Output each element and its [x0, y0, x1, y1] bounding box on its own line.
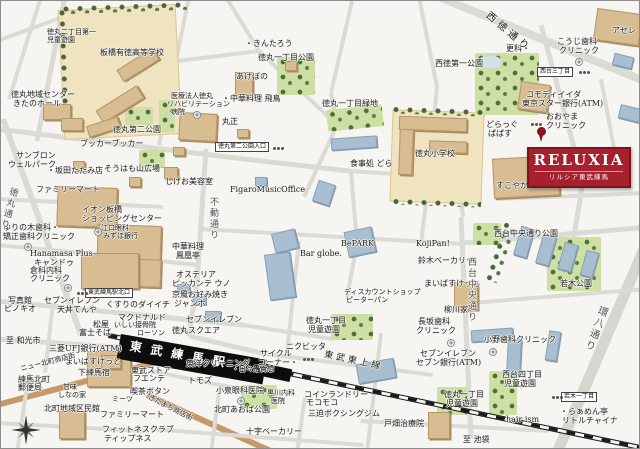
map-label: 京風お好み焼き — [172, 291, 228, 299]
traffic-signal-icon — [77, 292, 80, 295]
map-label: トモズ — [188, 377, 212, 385]
map-label: 徳丸一丁目 — [444, 391, 484, 399]
road-segment — [7, 0, 43, 100]
road-segment — [329, 0, 355, 93]
map-label: 北町あおば公園 — [214, 406, 270, 414]
medical-cross-icon: + — [489, 348, 497, 356]
map-label: 食事処 どら — [350, 160, 393, 168]
map-label: ジャンボ — [174, 300, 206, 308]
map-label: ・らぁめん亭 — [560, 408, 608, 416]
traffic-signal-icon — [531, 123, 534, 126]
building — [312, 180, 336, 206]
park-area — [125, 107, 153, 125]
map-label: 児童遊園 — [504, 380, 536, 388]
map-label: 西台中央通り公園 — [494, 230, 558, 238]
map-label: 児童遊園 — [446, 400, 478, 408]
map-label: 徳丸小学校 — [415, 150, 455, 158]
map-label: 三迫ボクシングジム — [308, 410, 380, 418]
medical-cross-icon: + — [64, 284, 72, 292]
traffic-signal-icon — [273, 147, 276, 150]
map-label: ぱぱす — [488, 130, 512, 138]
map-label: サンブロン — [16, 152, 56, 160]
building — [331, 135, 378, 150]
map-label: しげお美容室 — [165, 178, 213, 186]
map-label: Bar globe. — [300, 250, 342, 258]
map-label: 矯正歯科クリニック — [3, 233, 75, 241]
map-label: 西台四丁目 — [502, 371, 542, 379]
traffic-signal-icon — [303, 358, 306, 361]
map-label: 東武東上線 — [323, 351, 384, 372]
map-label: 徳丸スクエア — [172, 327, 220, 335]
map-label: リトルチャイナ — [562, 417, 618, 425]
map-label: 鳳凰亭 — [176, 252, 200, 260]
map-label: サイクル — [260, 350, 292, 358]
map-label: いしい接骨院 — [114, 322, 156, 329]
map-label: 若木公園 — [560, 280, 592, 288]
medical-cross-icon: + — [193, 111, 201, 119]
property-pin-icon — [539, 135, 543, 142]
map-label: ・日々是貴想 — [232, 366, 274, 373]
building — [59, 411, 85, 439]
map-label: ・中華料理 飛鳥 — [222, 95, 281, 103]
map-label: 板橋有徳高等学校 — [100, 49, 164, 57]
map-label: 東京スター銀行(ATM) — [522, 100, 603, 108]
map-label: 不動通り — [208, 197, 217, 241]
map-label: 中華料理 — [172, 243, 204, 251]
map-label: FigaroMusicOffice — [230, 186, 305, 194]
map-label: ミーツ — [112, 396, 133, 403]
map-label: しなの家 — [58, 392, 86, 399]
map-label: ファミリーマート — [36, 186, 100, 194]
building — [285, 61, 297, 71]
map-label: くすりのダイイチ — [106, 301, 170, 309]
map-label: どらっぐ — [486, 121, 518, 129]
map-label: 十字ベーカリー — [246, 428, 302, 436]
map-label: 西台中央通り — [466, 257, 475, 323]
map-label: BePARK — [341, 240, 374, 248]
map-label: ゆりの木歯科・ — [3, 224, 59, 232]
map-label: こうじ歯科 — [557, 38, 597, 46]
map-label: そうはも山広場 — [104, 165, 160, 173]
map-label: 病院 — [171, 109, 185, 116]
map-label: リハビリテーション — [167, 101, 230, 108]
map-label: 甘味 — [63, 384, 77, 391]
map-label: 長坂歯科 — [418, 318, 450, 326]
map-label: KojiPan! — [416, 240, 450, 248]
map-label: ファミリーマート — [100, 411, 164, 419]
building — [398, 129, 414, 175]
medical-cross-icon: + — [24, 243, 32, 251]
map-label: 小泉眼科医院 — [216, 387, 264, 395]
map-label: ローソン — [137, 330, 165, 337]
map-label: 小野歯科クリニック — [484, 336, 556, 344]
map-label: 江口眼科 — [101, 225, 129, 232]
map-label: セブンイレブン — [186, 316, 242, 324]
map-label: 三菱UFJ銀行(ATM) — [49, 345, 122, 353]
map-label: フィットネスクラブ — [102, 426, 174, 434]
map-label: Hanamasa Plus — [30, 250, 93, 258]
map-label: ニクビッタ — [286, 343, 326, 351]
map-label: 黒川内科 — [267, 390, 295, 397]
map-label: コーナー・ — [258, 359, 298, 367]
road-segment — [227, 155, 350, 174]
building — [61, 118, 83, 131]
medical-cross-icon: + — [447, 339, 455, 347]
map-label: ピーターパン — [346, 297, 388, 304]
map-label: 医療法人徳丸 — [171, 93, 213, 100]
map-label: セブンイレブン — [44, 297, 100, 305]
property-badge: RELUXIA リルシア東武練馬 — [527, 147, 631, 188]
map-label: クリニック — [546, 122, 586, 130]
map-label: あけぼの — [236, 73, 268, 81]
map-label: 郵便局 — [18, 384, 42, 392]
building — [237, 129, 249, 138]
medical-cross-icon: + — [575, 58, 583, 66]
map-label: 徳丸地域センター — [11, 91, 75, 99]
map-label: 徳丸第二公園 — [113, 126, 161, 134]
map-label: フエンテ — [133, 375, 165, 383]
building — [618, 104, 640, 124]
park-area — [326, 104, 384, 132]
property-badge-subtitle: リルシア東武練馬 — [535, 171, 623, 181]
map-label: ディスカウントショップ — [344, 289, 421, 296]
map-label: 西徳第一公園 — [435, 60, 483, 68]
map-label: ・きんたろう — [245, 40, 293, 48]
railway-dest-east: 至 池袋 — [463, 436, 490, 444]
map-label: みずほ銀行 — [103, 233, 138, 240]
medical-cross-icon: + — [94, 228, 102, 236]
location-map: 東武練馬駅 至 和光市 至 池袋 RELUXIA リルシア東武練馬 徳丸二丁目第… — [0, 0, 640, 449]
map-label: 児童遊園 — [47, 37, 75, 44]
map-label: クリニック — [30, 275, 70, 283]
compass-rose-icon — [11, 413, 41, 447]
traffic-signal-icon — [552, 396, 555, 399]
medical-cross-icon: + — [237, 397, 245, 405]
map-label: ピッカンテ ウノ — [172, 280, 231, 288]
map-label: 下練馬宿 — [78, 369, 110, 377]
map-label: 天丼てんや — [57, 306, 97, 314]
map-label: 徳丸一丁目公園 — [258, 54, 314, 62]
map-label: 戸畑治療院 — [384, 420, 424, 428]
intersection-sign: 若木一丁目 — [561, 392, 597, 402]
map-label: おおやま — [546, 113, 578, 121]
map-label: きたのホール — [13, 100, 61, 108]
map-label: クリニック — [559, 47, 599, 55]
map-label: 医院 — [271, 398, 285, 405]
map-label: 丸正 — [222, 118, 238, 126]
map-label: 徳丸二丁目第一 — [47, 29, 96, 36]
map-label: セブンイレブン — [420, 350, 476, 358]
building — [428, 412, 450, 439]
road-segment — [417, 0, 439, 87]
map-label: ピノキオ — [4, 305, 36, 313]
map-label: ティップネス — [104, 435, 152, 443]
map-label: ・坂田たたみ店 — [47, 167, 103, 175]
traffic-signal-icon — [579, 71, 582, 74]
map-label: ブッカーブッカー — [80, 140, 144, 148]
property-badge-title: RELUXIA — [529, 153, 629, 168]
map-label: オステリア — [176, 271, 216, 279]
map-label: コモディイイダ — [526, 91, 581, 99]
building — [81, 253, 139, 289]
building — [173, 147, 185, 156]
intersection-sign: 徳丸第二公園入口 — [215, 142, 269, 152]
map-label: ショッピングセンター — [82, 215, 162, 223]
building — [271, 228, 299, 253]
map-label: アゼレ — [612, 27, 636, 35]
map-label: イオン板橋 — [82, 206, 122, 214]
map-label: モコモコ — [306, 399, 338, 407]
building — [129, 177, 141, 187]
map-label: 北町地域区民館 — [44, 405, 100, 413]
map-label: クリニック — [416, 327, 456, 335]
map-label: 富士そば — [79, 329, 111, 337]
intersection-sign: 西台三丁目 — [537, 67, 573, 77]
intersection-sign: 東武練馬駅北口 — [85, 288, 133, 298]
building — [264, 251, 296, 300]
map-label: セブン銀行(ATM) — [416, 359, 481, 367]
map-label: 徳丸一丁目緑地 — [322, 100, 378, 108]
map-label: 児童遊園 — [308, 326, 340, 334]
railway-dest-west: 至 和光市 — [6, 337, 41, 345]
map-label: 徳丸一丁目 — [306, 317, 346, 325]
map-label: hair ism — [506, 416, 539, 424]
